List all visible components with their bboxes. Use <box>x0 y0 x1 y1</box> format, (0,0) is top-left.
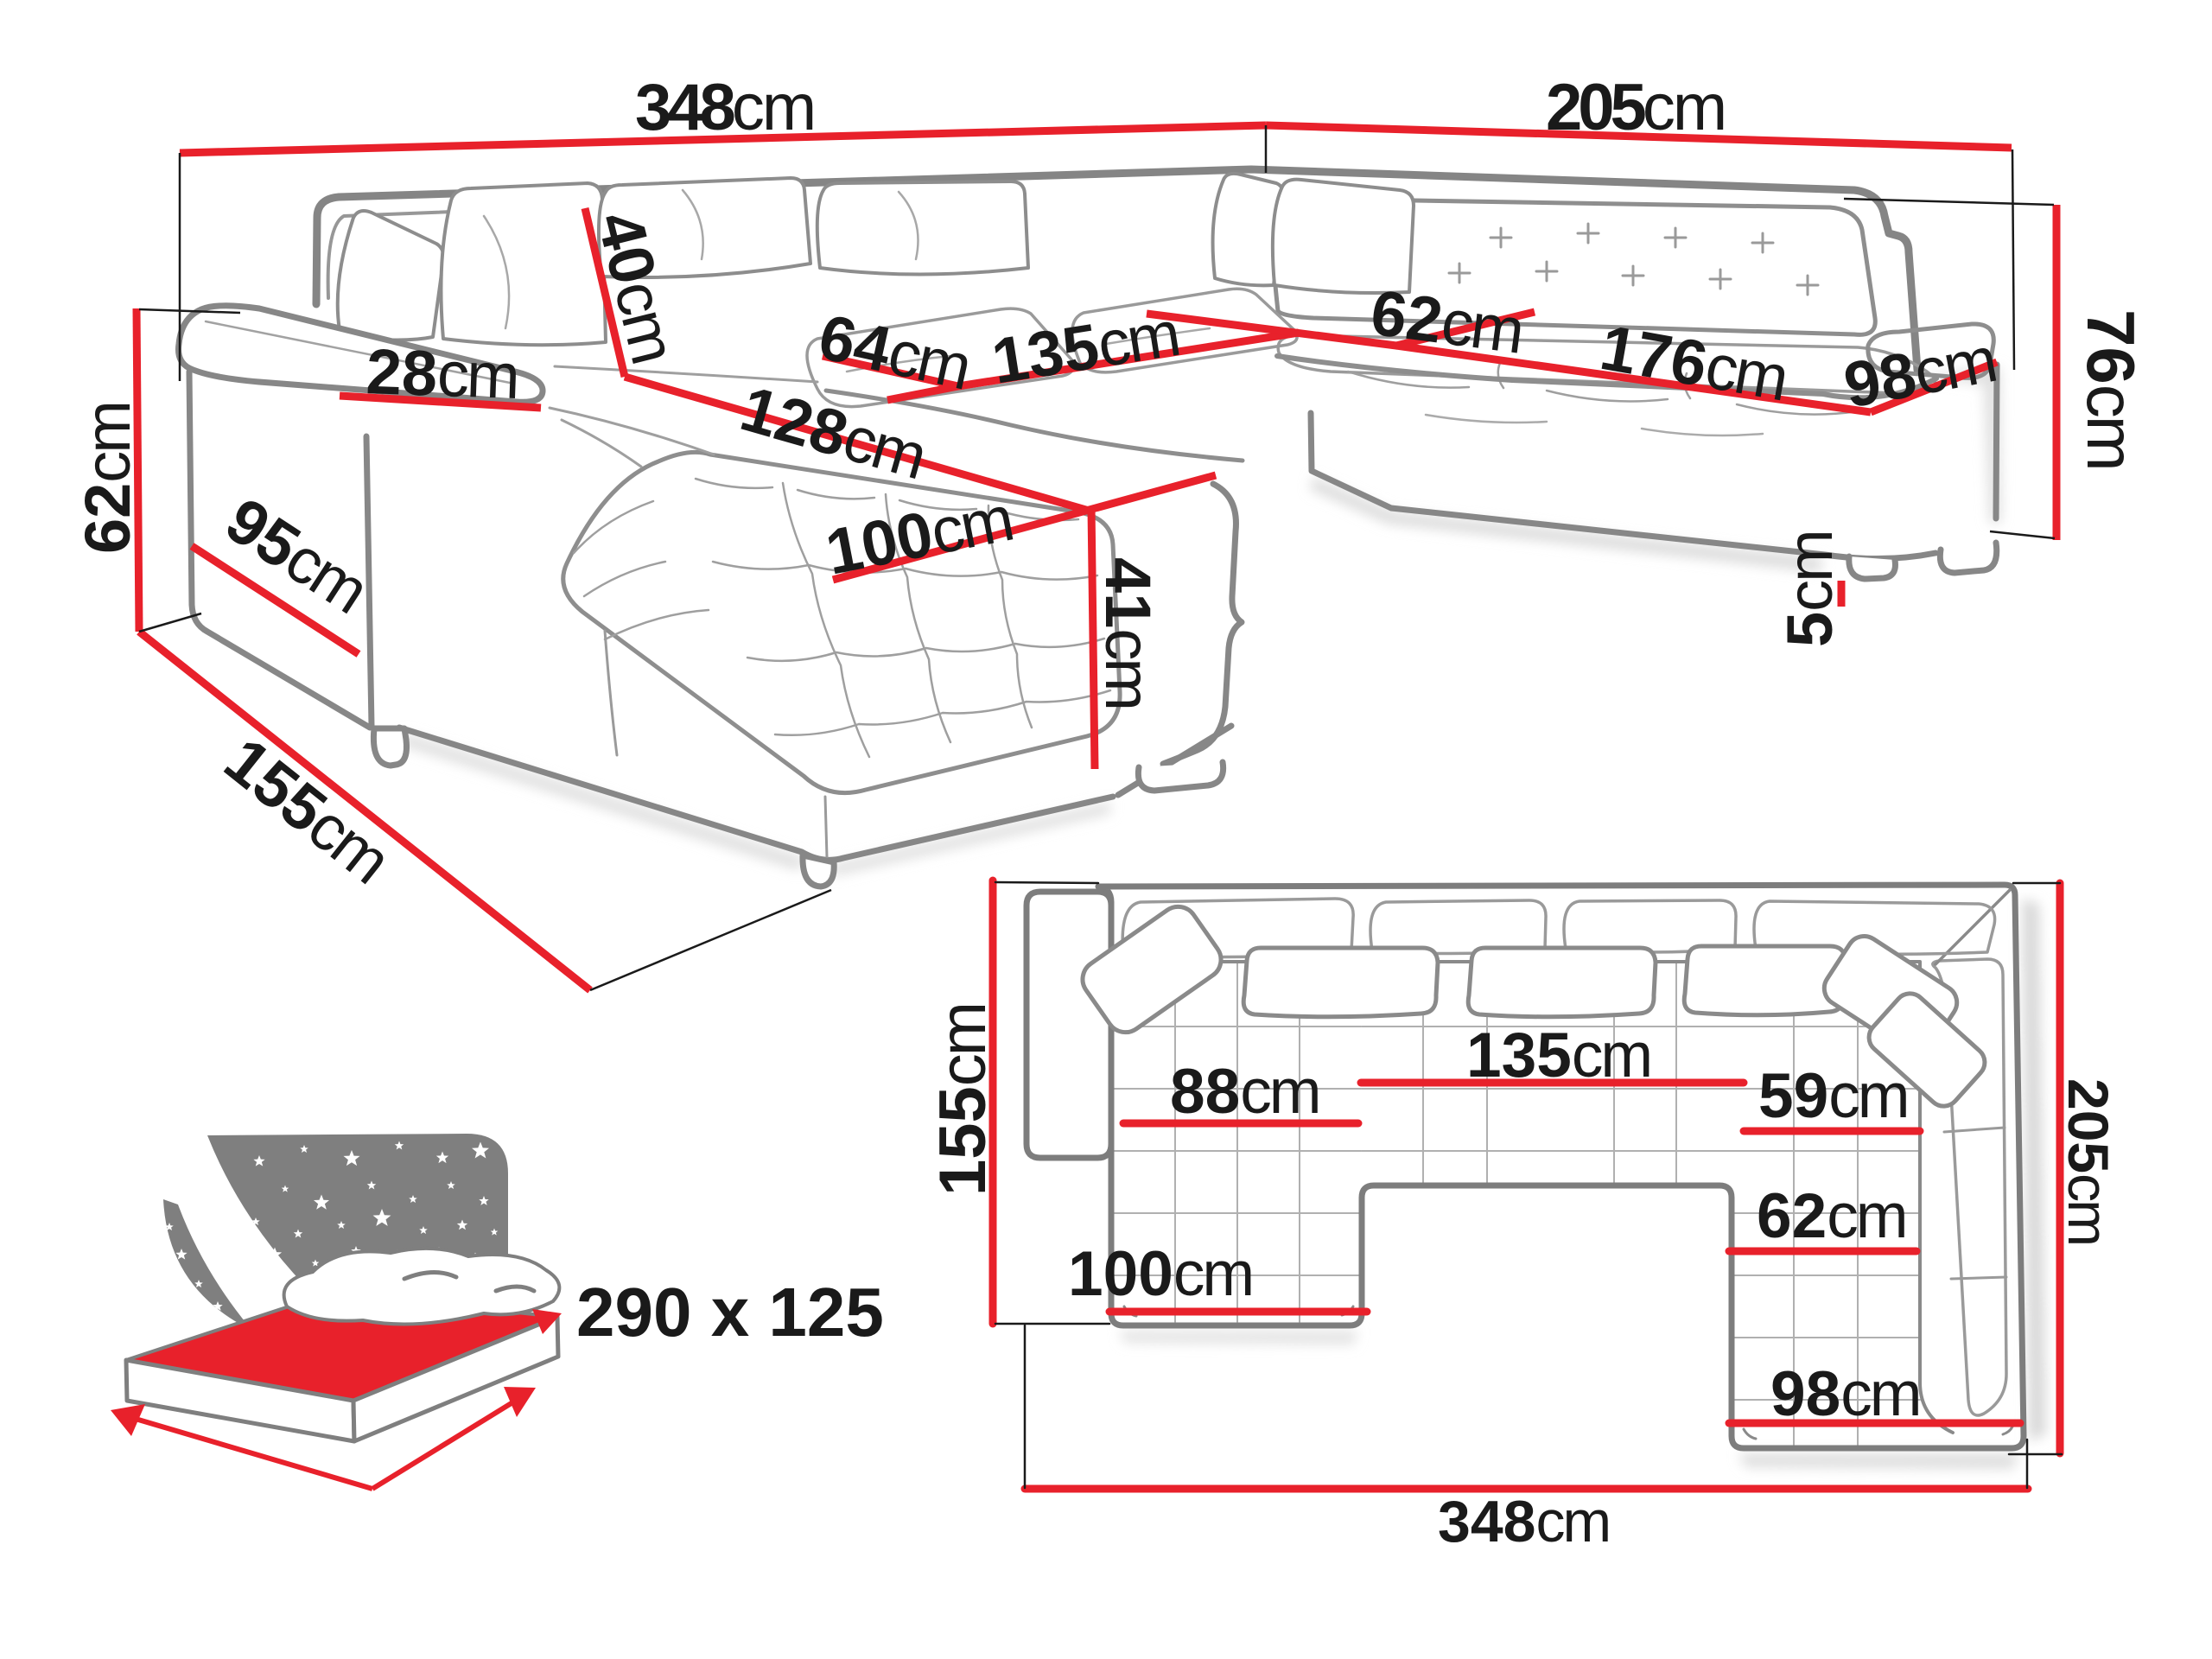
svg-text:76cm: 76cm <box>2073 309 2149 469</box>
svg-text:290 x 125: 290 x 125 <box>576 1274 884 1351</box>
svg-text:62cm: 62cm <box>72 403 143 554</box>
svg-text:155cm: 155cm <box>926 1004 1000 1196</box>
svg-text:135cm: 135cm <box>1466 1020 1650 1090</box>
svg-text:28cm: 28cm <box>365 335 518 412</box>
svg-text:88cm: 88cm <box>1170 1057 1319 1127</box>
svg-text:41cm: 41cm <box>1092 557 1164 709</box>
svg-text:348cm: 348cm <box>1438 1489 1609 1554</box>
svg-text:62cm: 62cm <box>1757 1181 1906 1251</box>
svg-text:348cm: 348cm <box>635 71 814 144</box>
svg-text:5cm: 5cm <box>1774 531 1846 647</box>
svg-text:205cm: 205cm <box>1546 71 1725 144</box>
svg-text:98cm: 98cm <box>1770 1359 1920 1429</box>
svg-text:205cm: 205cm <box>2056 1078 2120 1244</box>
svg-text:59cm: 59cm <box>1758 1061 1908 1131</box>
svg-text:100cm: 100cm <box>1068 1239 1252 1309</box>
